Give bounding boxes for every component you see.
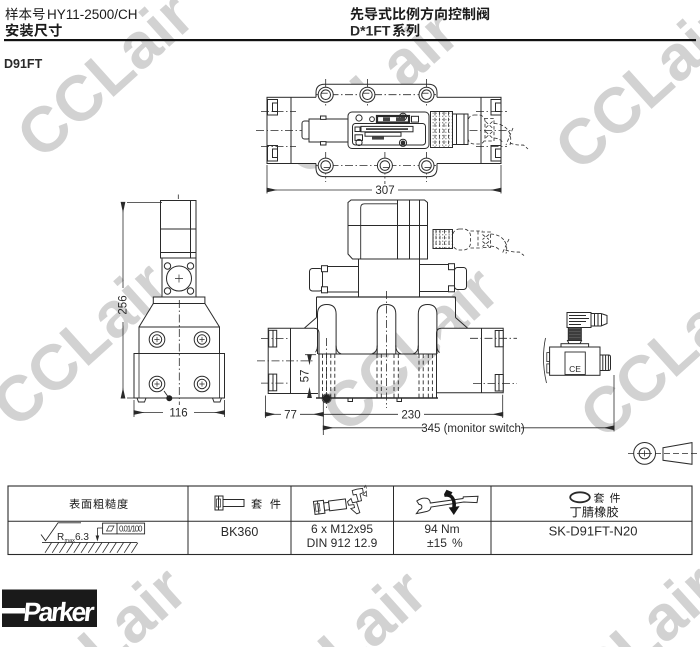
svg-text:6.3: 6.3 (75, 532, 89, 543)
svg-text:CE: CE (569, 364, 581, 374)
svg-text:±15: ±15 (427, 536, 447, 550)
svg-text:77: 77 (284, 409, 297, 421)
svg-text:6 x M12x95: 6 x M12x95 (311, 522, 373, 536)
svg-text:345 (monitor switch): 345 (monitor switch) (421, 423, 525, 435)
svg-text:256: 256 (118, 295, 130, 314)
svg-text:Parker: Parker (22, 597, 96, 627)
svg-text:230: 230 (401, 409, 420, 421)
svg-text:116: 116 (169, 408, 187, 420)
svg-text:SK-D91FT-N20: SK-D91FT-N20 (549, 524, 638, 539)
svg-text:57: 57 (300, 370, 312, 383)
svg-text:D91FT: D91FT (4, 57, 43, 71)
svg-text:DIN 912 12.9: DIN 912 12.9 (307, 536, 378, 550)
svg-text:max: max (65, 538, 76, 544)
svg-text:R: R (57, 532, 64, 543)
svg-text:%: % (452, 536, 463, 550)
svg-text:94 Nm: 94 Nm (424, 522, 459, 536)
svg-text:D*1FT: D*1FT (350, 23, 391, 39)
svg-text:BK360: BK360 (221, 525, 259, 539)
svg-text:0.01/100: 0.01/100 (119, 525, 143, 534)
svg-text:HY11-2500/CH: HY11-2500/CH (47, 7, 138, 22)
svg-text:307: 307 (375, 185, 394, 197)
